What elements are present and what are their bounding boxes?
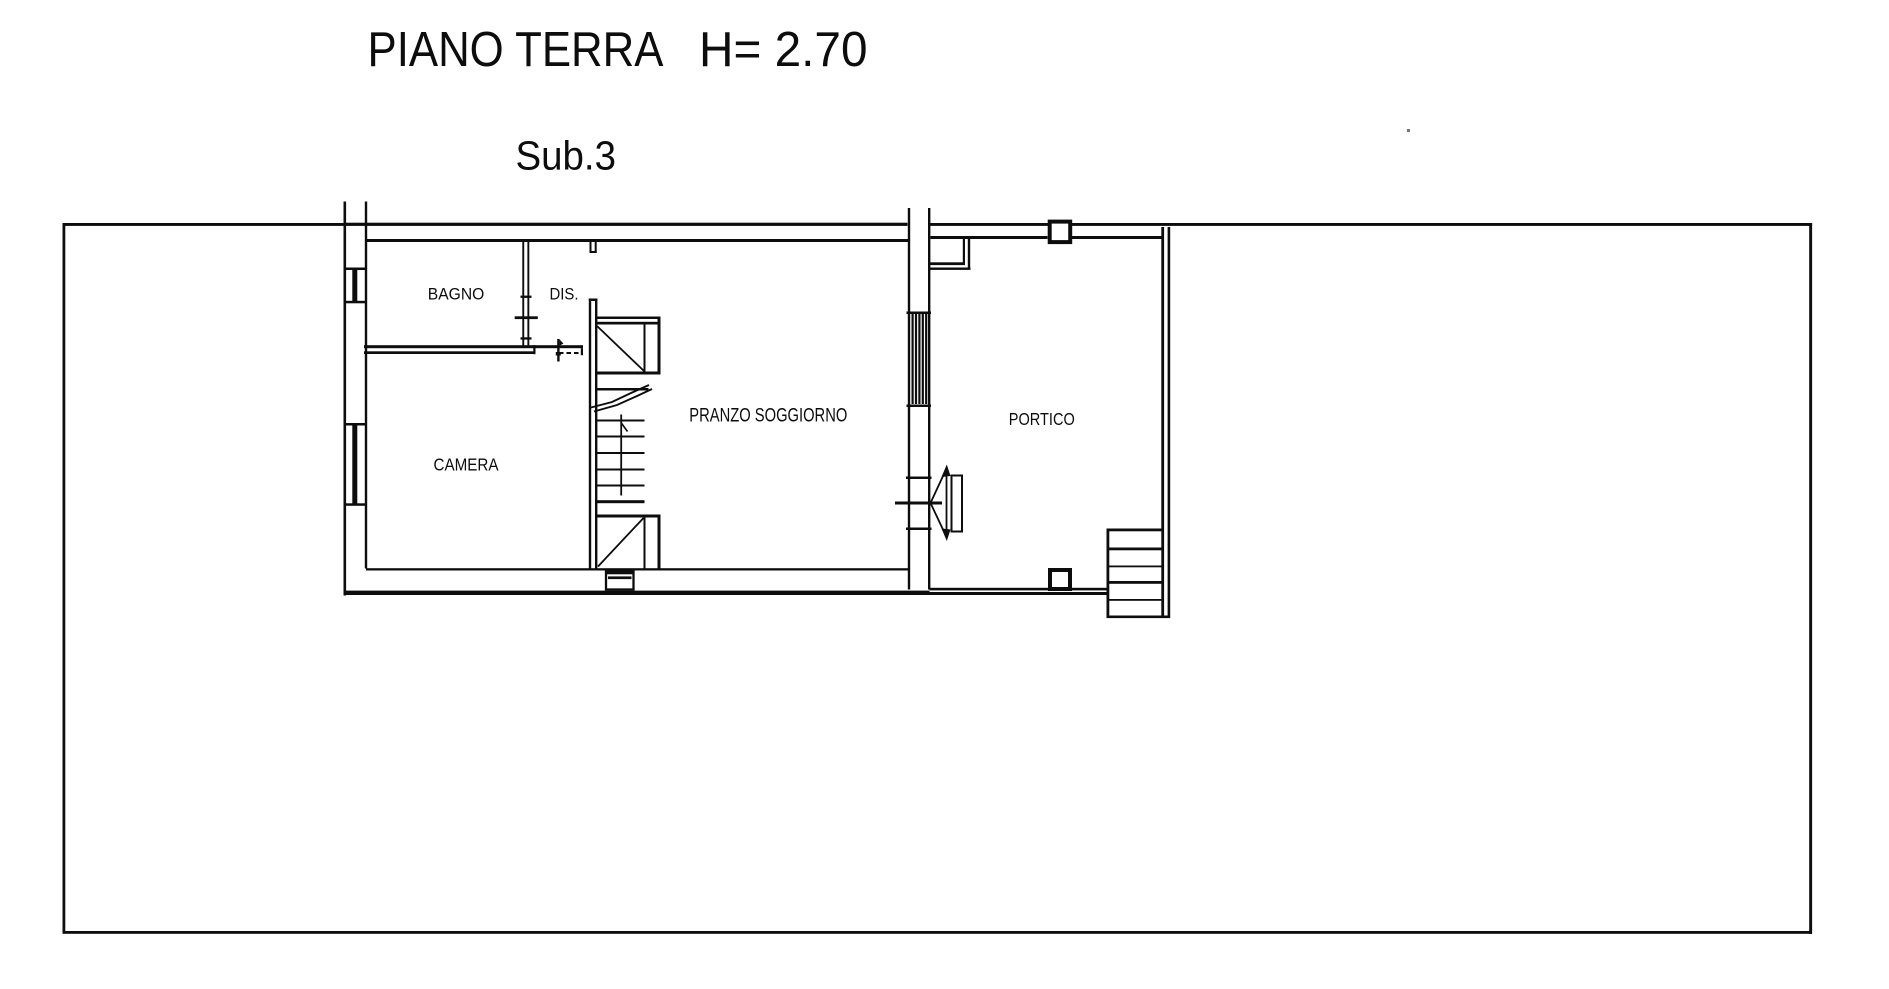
svg-text:H= 2.70: H= 2.70 bbox=[699, 22, 868, 77]
svg-text:Sub.3: Sub.3 bbox=[516, 133, 617, 179]
svg-text:PIANO TERRA: PIANO TERRA bbox=[368, 22, 664, 77]
svg-text:PRANZO SOGGIORNO: PRANZO SOGGIORNO bbox=[689, 406, 847, 427]
svg-text:CAMERA: CAMERA bbox=[434, 455, 499, 475]
svg-text:BAGNO: BAGNO bbox=[428, 285, 485, 304]
svg-text:PORTICO: PORTICO bbox=[1009, 409, 1075, 429]
svg-text:DIS.: DIS. bbox=[550, 285, 579, 304]
